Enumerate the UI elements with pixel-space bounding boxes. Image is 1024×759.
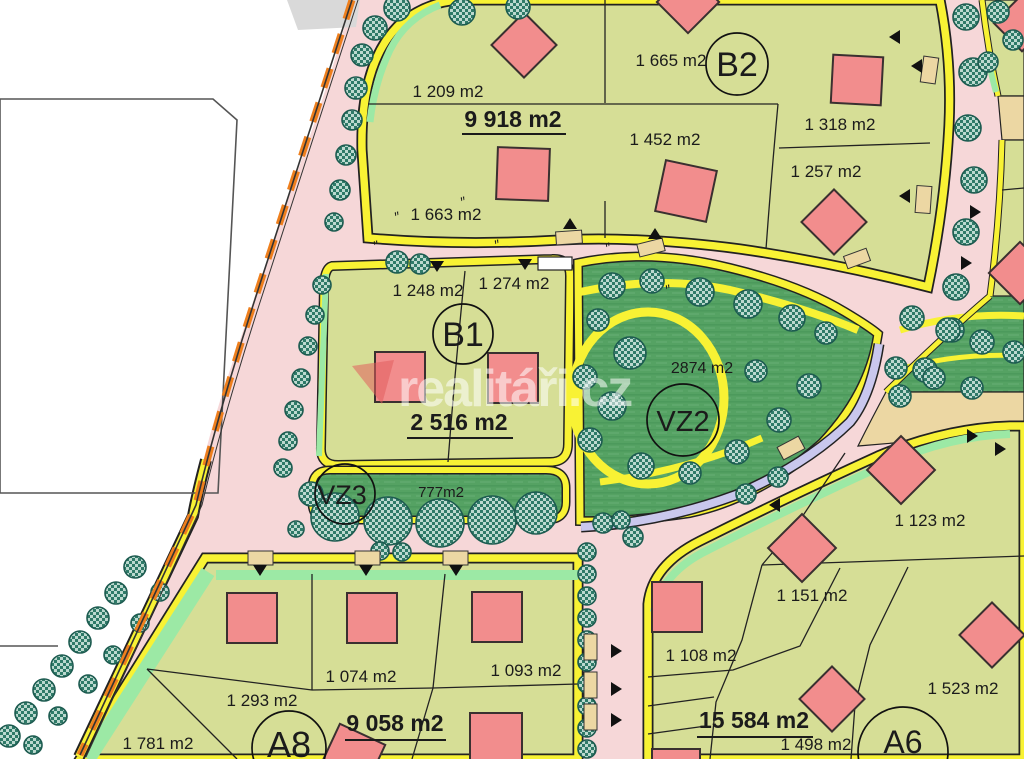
tree-icon: [640, 269, 664, 293]
tree-icon: [79, 675, 97, 693]
tree-icon: [51, 655, 73, 677]
parcel-area-label: 1 123 m2: [895, 511, 966, 530]
tree-icon: [313, 276, 331, 294]
tree-icon: [336, 145, 356, 165]
zone-label-a6: A6: [883, 724, 922, 759]
tree-icon: [612, 511, 630, 529]
tree-icon: [953, 219, 979, 245]
tree-icon: [900, 306, 924, 330]
building-footprint: [496, 147, 550, 201]
tree-icon: [364, 497, 412, 545]
tree-icon: [578, 565, 596, 583]
tree-icon: [449, 0, 475, 25]
building-footprint: [347, 593, 397, 643]
tree-icon: [679, 462, 701, 484]
block-total-area-label: 9 918 m2: [464, 106, 561, 132]
parcel-area-label: 1 093 m2: [491, 661, 562, 680]
tree-icon: [593, 513, 613, 533]
tree-icon: [578, 543, 596, 561]
tree-icon: [955, 115, 981, 141]
watermark-text: realitáři.cz: [398, 360, 632, 418]
zone-label-vz2: VZ2: [656, 406, 709, 438]
tree-icon: [351, 44, 373, 66]
tree-icon: [889, 385, 911, 407]
tree-icon: [736, 484, 756, 504]
tree-icon: [936, 318, 960, 342]
tree-icon: [961, 377, 983, 399]
tree-icon: [299, 337, 317, 355]
tree-icon: [69, 631, 91, 653]
tree-icon: [953, 4, 979, 30]
zoning-plan-screenshot: ″″″″″″ 1 209 m2 9 918 m2 1 663 m2 1 665 …: [0, 0, 1024, 759]
tree-icon: [745, 360, 767, 382]
tree-icon: [578, 609, 596, 627]
tree-icon: [105, 582, 127, 604]
tree-icon: [1003, 30, 1023, 50]
tree-icon: [104, 646, 122, 664]
driveway-marker: [915, 186, 932, 214]
tree-icon: [345, 77, 367, 99]
tree-icon: [623, 527, 643, 547]
tree-icon: [779, 305, 805, 331]
tree-icon: [468, 496, 516, 544]
tree-icon: [87, 607, 109, 629]
tree-icon: [285, 401, 303, 419]
tree-icon: [24, 736, 42, 754]
building-footprint: [227, 593, 277, 643]
road-inset-box: [538, 257, 572, 270]
tree-icon: [274, 459, 292, 477]
tree-icon: [587, 309, 609, 331]
tree-icon: [49, 707, 67, 725]
tree-icon: [33, 679, 55, 701]
tree-icon: [767, 408, 791, 432]
parcel-area-label: 1 074 m2: [326, 667, 397, 686]
tree-icon: [815, 322, 837, 344]
tree-icon: [961, 167, 987, 193]
tree-icon: [416, 499, 464, 547]
tree-icon: [978, 52, 998, 72]
driveway-marker: [248, 551, 273, 565]
tree-icon: [987, 1, 1009, 23]
tree-icon: [578, 740, 596, 758]
parcel-area-label: 1 523 m2: [928, 679, 999, 698]
tree-icon: [628, 453, 654, 479]
parcel-area-label: 1 274 m2: [479, 274, 550, 293]
tree-icon: [363, 16, 387, 40]
driveway-marker: [584, 634, 597, 660]
tree-icon: [325, 213, 343, 231]
tree-icon: [923, 367, 945, 389]
zoning-map: ″″″″″″ 1 209 m2 9 918 m2 1 663 m2 1 665 …: [0, 0, 1024, 759]
parcel-area-label: 1 781 m2: [123, 734, 194, 753]
tree-icon: [410, 254, 430, 274]
building-footprint: [472, 592, 522, 642]
parcel-area-label: 777m2: [418, 484, 464, 501]
zone-label-b2: B2: [716, 46, 758, 84]
tree-icon: [15, 702, 37, 724]
building-footprint: [470, 713, 522, 759]
driveway-marker: [920, 56, 938, 84]
tree-icon: [578, 428, 602, 452]
tree-icon: [288, 521, 304, 537]
parcel-area-label: 1 257 m2: [791, 162, 862, 181]
driveway-marker: [443, 551, 468, 565]
tree-icon: [330, 180, 350, 200]
parcel-area-label: 1 665 m2: [636, 51, 707, 70]
tree-icon: [943, 274, 969, 300]
tree-icon: [686, 278, 714, 306]
tree-icon: [506, 0, 530, 19]
tree-icon: [0, 725, 20, 747]
tree-icon: [1003, 341, 1024, 363]
tree-icon: [515, 492, 557, 534]
block-total-area-label: 9 058 m2: [346, 710, 443, 736]
tree-icon: [970, 330, 994, 354]
tree-icon: [386, 251, 408, 273]
parcel-area-label: 1 108 m2: [666, 646, 737, 665]
parcel-area-label: 2874 m2: [671, 360, 733, 377]
driveway-marker: [355, 551, 380, 565]
zone-label-a8: A8: [267, 724, 311, 759]
tree-icon: [885, 357, 907, 379]
driveway-marker: [556, 230, 583, 245]
tree-icon: [734, 290, 762, 318]
tree-icon: [599, 273, 625, 299]
building-footprint: [652, 582, 702, 632]
tree-icon: [393, 543, 411, 561]
parcel-area-label: 1 151 m2: [777, 586, 848, 605]
driveway-marker: [584, 672, 597, 698]
parcel-area-label: 1 663 m2: [411, 205, 482, 224]
block-total-area-label: 15 584 m2: [699, 707, 809, 733]
building-footprint: [655, 160, 717, 222]
tree-icon: [124, 556, 146, 578]
parcel-area-label: 1 452 m2: [630, 130, 701, 149]
tree-icon: [797, 374, 821, 398]
building-footprint: [652, 749, 700, 759]
tree-icon: [292, 369, 310, 387]
tree-icon: [384, 0, 410, 21]
tree-icon: [725, 440, 749, 464]
tree-icon: [768, 467, 788, 487]
parcel-area-label: 1 209 m2: [413, 82, 484, 101]
building-footprint: [831, 55, 883, 106]
tree-icon: [279, 432, 297, 450]
parcel-area-label: 1 498 m2: [781, 735, 852, 754]
tree-icon: [342, 110, 362, 130]
driveway-marker: [584, 704, 597, 730]
zone-label-vz3: VZ3: [317, 480, 367, 510]
parcel-area-label: 1 318 m2: [805, 115, 876, 134]
tree-icon: [306, 306, 324, 324]
parcel-area-label: 1 248 m2: [393, 281, 464, 300]
zone-label-b1: B1: [442, 316, 484, 354]
tree-icon: [578, 587, 596, 605]
parcel-area-label: 1 293 m2: [227, 691, 298, 710]
